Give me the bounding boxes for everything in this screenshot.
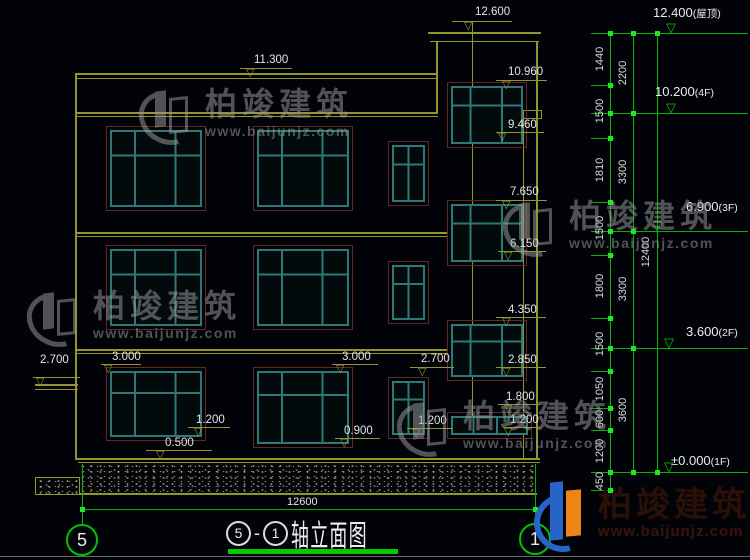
dim-node: [608, 316, 613, 321]
window-4f-small: [388, 141, 429, 206]
elevation-label: 2.700: [40, 354, 69, 366]
triangle-down-icon: ▽: [666, 101, 676, 114]
dim-node: [655, 31, 660, 36]
watermark-name: 柏竣建筑: [205, 87, 353, 122]
watermark: 柏竣建筑www.baijunjz.com: [26, 286, 241, 344]
title-dash: -: [254, 523, 260, 544]
window-glass: [257, 249, 349, 326]
floor-band-3f-line: [75, 232, 447, 234]
dim-node: [631, 31, 636, 36]
sheet-edge-line: [0, 556, 750, 557]
axis-number: 1: [272, 525, 280, 541]
elevation-label: 9.460: [508, 119, 537, 131]
dim-node: [608, 136, 613, 141]
elevation-label: 1.200: [196, 414, 225, 426]
window-glass: [257, 371, 349, 444]
watermark-logo-icon: [26, 286, 84, 344]
dim-value: 3300: [617, 257, 629, 321]
elevation-label: 0.900: [344, 425, 373, 437]
window-3f-b: [253, 245, 353, 330]
tower-coping-bottom-line: [430, 41, 539, 42]
elevation-label: 11.300: [254, 54, 288, 66]
floor-band-3f-line2: [75, 236, 447, 237]
axis-number: 5: [77, 530, 87, 551]
level-label-4f: 10.200(4F): [655, 84, 714, 99]
window-glass: [392, 265, 425, 320]
title-axis-circle-1: 1: [263, 521, 288, 546]
triangle-down-icon: ▽: [194, 427, 202, 438]
tower-left-wall-line: [436, 41, 438, 112]
triangle-down-icon: ▽: [36, 377, 44, 388]
level-label-1f: ±0.000(1F): [671, 453, 730, 468]
cad-elevation-drawing: 12.600 ▽ 11.300 ▽ 10.960 ▽ 9.460 ▽ 7.650…: [0, 0, 750, 560]
dim-value: 2200: [617, 41, 629, 105]
triangle-down-icon: ▽: [340, 438, 348, 449]
level-label-2f: 3.600(2F): [686, 324, 738, 339]
elevation-label: 10.960: [508, 66, 543, 78]
level-suffix: (2F): [719, 327, 738, 339]
level-suffix: (3F): [719, 202, 738, 214]
dim-node: [608, 83, 613, 88]
watermark-logo-icon: [138, 84, 196, 142]
window-glass: [451, 86, 523, 144]
wall-base-line: [75, 458, 540, 460]
elevation-label: 0.500: [165, 437, 194, 449]
triangle-down-icon: ▽: [502, 317, 510, 328]
watermark: 柏竣建筑www.baijunjz.com: [138, 84, 353, 142]
window-glass: [451, 324, 523, 377]
tower-coping-top-line: [428, 32, 541, 34]
watermark-name: 柏竣建筑: [93, 289, 241, 324]
window-2f-a: [106, 367, 206, 441]
triangle-down-icon: ▽: [156, 450, 164, 461]
elevation-label: 2.700: [421, 353, 450, 365]
watermark-url: www.baijunjz.com: [205, 123, 353, 139]
bottom-dim-line: [82, 509, 536, 510]
elevation-label: 3.000: [112, 351, 141, 363]
dim-value: 1810: [594, 138, 606, 202]
brand-url: www.baijunjz.com: [598, 523, 750, 540]
watermark-url: www.baijunjz.com: [93, 325, 241, 341]
level-suffix: (1F): [711, 456, 730, 468]
dim-value: 3300: [617, 140, 629, 204]
elevation-label: 4.350: [508, 304, 537, 316]
window-stair-4f: [447, 82, 527, 148]
triangle-down-icon: ▽: [464, 21, 472, 32]
triangle-down-icon: ▽: [104, 364, 112, 375]
watermark-logo-icon: [502, 196, 560, 254]
window-3f-small: [388, 261, 429, 324]
title-axis-circle-5: 5: [226, 521, 251, 546]
left-wall-line: [75, 73, 77, 460]
triangle-down-icon: ▽: [336, 364, 344, 375]
watermark: 柏竣建筑www.baijunjz.com: [502, 196, 717, 254]
triangle-down-icon: ▽: [418, 367, 426, 378]
elevation-label: 12.600: [475, 6, 510, 18]
window-glass: [392, 145, 425, 202]
dim-value: 1500: [594, 79, 606, 143]
window-2f-b: [253, 367, 353, 448]
window-stair-2f: [447, 320, 527, 381]
level-suffix: (屋顶): [693, 8, 721, 20]
ground-hatch-left-step: [35, 477, 80, 495]
level-value: 3.600: [686, 324, 719, 339]
triangle-down-icon: ▽: [246, 68, 254, 79]
dim-node: [80, 507, 85, 512]
brand-logo: 柏竣建筑www.baijunjz.com: [536, 472, 750, 556]
level-suffix: (4F): [695, 87, 714, 99]
triangle-down-icon: ▽: [502, 80, 510, 91]
axis-number: 5: [235, 525, 243, 541]
dim-node: [631, 111, 636, 116]
dim-value: 1800: [594, 254, 606, 318]
dim-node: [631, 346, 636, 351]
elevation-label: 3.000: [342, 351, 371, 363]
elevation-leader-line: [410, 367, 454, 368]
level-value: 10.200: [655, 84, 695, 99]
ground-hatch: [78, 463, 537, 495]
dim-value: 3600: [617, 378, 629, 442]
dim-node: [608, 369, 613, 374]
brand-name: 柏竣建筑: [598, 488, 750, 524]
dim-node: [608, 111, 613, 116]
watermark-url: www.baijunjz.com: [463, 435, 611, 451]
bottom-width-value: 12600: [287, 496, 318, 508]
parapet-bottom-line: [75, 78, 438, 79]
axis-bubble-5: 5: [66, 524, 98, 556]
level-value: ±0.000: [671, 453, 711, 468]
parapet-top-line: [75, 73, 438, 75]
watermark-logo-icon: [396, 396, 454, 454]
dim-node: [608, 31, 613, 36]
title-underline: [228, 549, 398, 554]
watermark-name: 柏竣建筑: [463, 399, 611, 434]
triangle-down-icon: ▽: [498, 132, 506, 143]
brand-logo-icon: [536, 472, 590, 556]
watermark-name: 柏竣建筑: [569, 199, 717, 234]
triangle-down-icon: ▽: [664, 336, 674, 349]
dim-node: [608, 346, 613, 351]
level-label-roof: 12.400(屋顶): [653, 5, 721, 21]
axis-line-left: [82, 464, 83, 524]
elevation-leader-line: [452, 21, 512, 22]
canopy-bottom-line: [35, 389, 78, 390]
level-value: 12.400: [653, 5, 693, 20]
watermark-url: www.baijunjz.com: [569, 235, 717, 251]
triangle-down-icon: ▽: [666, 21, 676, 34]
watermark: 柏竣建筑www.baijunjz.com: [396, 396, 611, 454]
triangle-down-icon: ▽: [502, 367, 510, 378]
elevation-label: 2.850: [508, 354, 537, 366]
